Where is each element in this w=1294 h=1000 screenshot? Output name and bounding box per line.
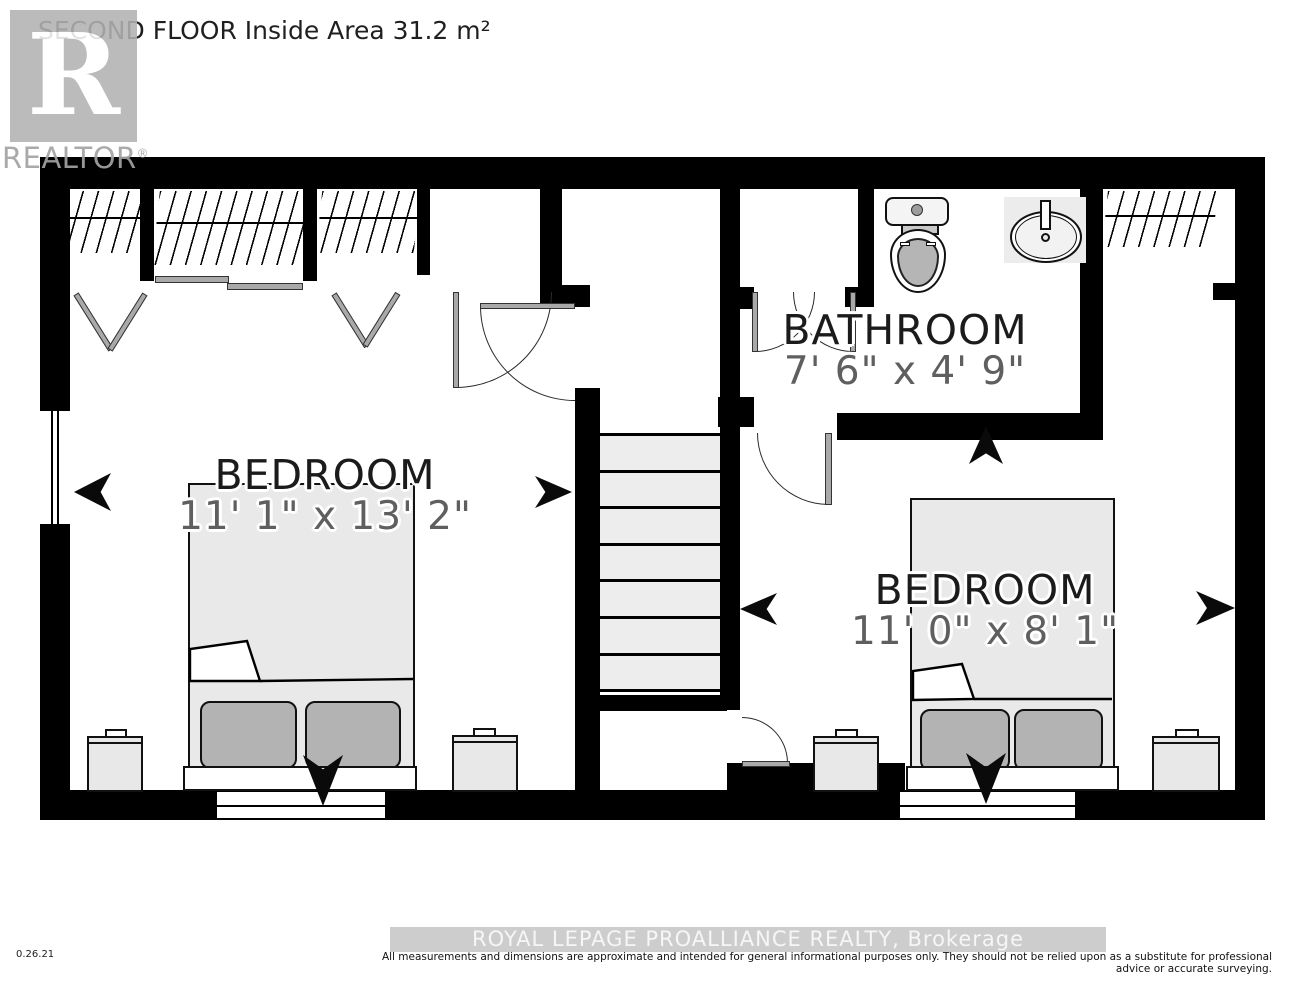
version-number: 0.26.21: [16, 949, 54, 960]
door-leaf: [453, 292, 459, 388]
stair-tread: [600, 543, 720, 580]
room-label-bedroom1: BEDROOM 11' 1" x 13' 2": [110, 455, 540, 537]
nightstand-edge: [1154, 742, 1218, 744]
direction-arrow-left: [74, 473, 111, 511]
pillow: [305, 701, 401, 769]
closet-rod: [156, 222, 303, 224]
bifold-door: [362, 292, 400, 348]
closet-rod: [64, 217, 140, 219]
nightstand-handle: [105, 729, 127, 738]
nightstand-handle: [835, 729, 858, 738]
stair-tread: [600, 433, 720, 470]
stair-tread: [600, 506, 720, 543]
sink-drain: [1041, 233, 1050, 242]
window-mullion: [57, 411, 59, 524]
bifold-door: [73, 292, 113, 351]
pillow: [200, 701, 297, 769]
sliding-door: [227, 283, 303, 290]
closet-rod: [1105, 215, 1215, 217]
toilet-hinge: [926, 242, 936, 246]
room-dimensions: 11' 1" x 13' 2": [110, 497, 540, 537]
stair-tread: [600, 653, 720, 692]
realtor-wordmark: REALTOR®: [2, 141, 162, 175]
realtor-logo-letter: R: [27, 20, 120, 132]
room-label-bedroom2: BEDROOM 11' 0" x 8' 1": [800, 570, 1170, 652]
room-dimensions: 7' 6" x 4' 9": [745, 352, 1065, 392]
staircase: [600, 433, 720, 692]
headboard: [183, 766, 417, 791]
closet-rail-icon: [152, 191, 307, 265]
door-leaf: [825, 433, 832, 505]
closet-rail-icon: [1102, 191, 1218, 247]
pillow: [1014, 709, 1103, 771]
wall-stair-divider: [720, 189, 740, 710]
nightstand-edge: [454, 741, 516, 743]
room-name: BEDROOM: [800, 570, 1170, 612]
door-leaf: [742, 761, 790, 767]
window-bottom-left: [217, 790, 385, 820]
door-swing-arc: [757, 433, 829, 505]
room-dimensions: 11' 0" x 8' 1": [800, 612, 1170, 652]
realtor-logo-icon: R: [10, 10, 137, 142]
nightstand-edge: [89, 742, 141, 744]
brokerage-watermark: ROYAL LEPAGE PROALLIANCE REALTY, Brokera…: [390, 927, 1106, 952]
room-name: BATHROOM: [745, 310, 1065, 352]
floorplan-page: SECOND FLOOR Inside Area 31.2 m² R REALT…: [0, 0, 1294, 1000]
headboard: [906, 766, 1119, 791]
nightstand: [813, 736, 879, 792]
door-leaf: [480, 303, 575, 309]
wall-outer-right: [1235, 157, 1265, 820]
toilet-flush-button: [911, 204, 923, 216]
disclaimer-text: All measurements and dimensions are appr…: [360, 951, 1272, 975]
wall-wc-closet-right: [858, 189, 874, 289]
closet-rod: [319, 217, 417, 219]
toilet-hinge: [900, 242, 910, 246]
window-mullion: [900, 805, 1075, 807]
wall-stair-divider-stub: [718, 397, 754, 427]
stair-tread: [600, 616, 720, 653]
window-mullion: [51, 411, 53, 524]
nightstand: [452, 735, 518, 792]
wall-closet-pier-1: [140, 189, 154, 281]
window-left-wall: [40, 408, 70, 527]
stair-tread: [600, 579, 720, 616]
direction-arrow-right: [535, 476, 572, 508]
window-mullion: [217, 805, 385, 807]
room-label-bathroom: BATHROOM 7' 6" x 4' 9": [745, 310, 1065, 392]
nightstand-handle: [473, 728, 496, 737]
nightstand-handle: [1175, 729, 1199, 738]
wall-outer-top: [40, 157, 1265, 189]
nightstand: [87, 736, 143, 792]
registered-mark: ®: [137, 146, 150, 160]
wall-bathroom-bottom: [837, 413, 1103, 440]
wall-topright-stub: [1213, 283, 1235, 300]
nightstand-edge: [815, 742, 877, 744]
closet-rail-icon: [61, 191, 144, 253]
bifold-door: [331, 292, 369, 348]
wall-bedroom1-right: [575, 388, 600, 790]
sliding-door: [155, 276, 229, 283]
closet-rail-icon: [316, 191, 421, 253]
stair-tread: [600, 470, 720, 507]
nightstand: [1152, 736, 1220, 792]
sink-faucet: [1040, 200, 1051, 230]
wall-understair: [575, 695, 727, 711]
direction-arrow-right: [1196, 591, 1235, 625]
room-name: BEDROOM: [110, 455, 540, 497]
door-swing-arc: [742, 717, 788, 763]
bifold-door: [107, 292, 147, 351]
direction-arrow-left: [740, 593, 777, 625]
